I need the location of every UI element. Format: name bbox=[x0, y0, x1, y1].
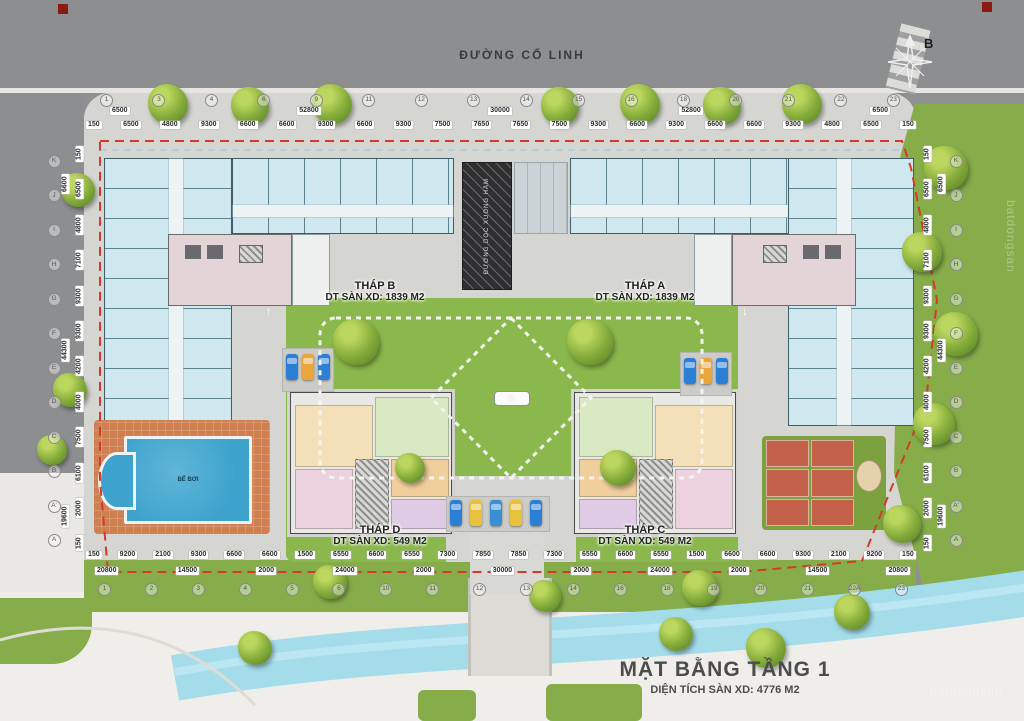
grid-bubble: 13 bbox=[467, 94, 480, 107]
tower-a-label: THÁP A DT SÀN XD: 1839 M2 bbox=[565, 280, 725, 303]
dimension-label: 7500 bbox=[433, 121, 453, 129]
grid-bubble: I bbox=[950, 224, 963, 237]
grid-bubble: 15 bbox=[572, 94, 585, 107]
dimension-label: 6600 bbox=[355, 121, 375, 129]
dim-chain-top-overall: 65005280030000528006500 bbox=[110, 107, 890, 115]
dimension-label: 150 bbox=[76, 146, 84, 162]
dimension-label: 7850 bbox=[509, 551, 529, 559]
grid-bubble: 23 bbox=[895, 583, 908, 596]
dimension-label: 9300 bbox=[76, 286, 84, 306]
grid-bubble: A bbox=[950, 534, 963, 547]
dimension-label: 2000 bbox=[256, 567, 276, 575]
dimension-label: 6500 bbox=[938, 174, 946, 194]
grid-bubble: 22 bbox=[834, 94, 847, 107]
grid-bubbles-right: KJIHGFEDCBA'A bbox=[948, 155, 964, 547]
dimension-label: 6600 bbox=[627, 121, 647, 129]
dimension-label: 6550 bbox=[580, 551, 600, 559]
dimension-label: 9300 bbox=[76, 321, 84, 341]
grid-bubble: 4 bbox=[205, 94, 218, 107]
dimension-label: 9300 bbox=[924, 321, 932, 341]
dimension-label: 150 bbox=[900, 551, 916, 559]
plan-title: MẶT BẰNG TẦNG 1 bbox=[585, 658, 865, 682]
grid-bubble: 16 bbox=[625, 94, 638, 107]
dimension-label: 6100 bbox=[924, 463, 932, 483]
dimension-label: 9300 bbox=[189, 551, 209, 559]
grid-bubble: 2 bbox=[145, 583, 158, 596]
dimension-label: 44300 bbox=[938, 338, 946, 361]
dimension-label: 6500 bbox=[76, 180, 84, 200]
grid-bubble: 6 bbox=[257, 94, 270, 107]
dimension-label: 6550 bbox=[651, 551, 671, 559]
grid-bubble: 6 bbox=[332, 583, 345, 596]
tree-icon bbox=[883, 505, 921, 543]
dimension-label: 7300 bbox=[544, 551, 564, 559]
tower-b-label: THÁP B DT SÀN XD: 1839 M2 bbox=[295, 280, 455, 303]
tower-c-label: THÁP C DT SÀN XD: 549 M2 bbox=[565, 524, 725, 547]
dimension-label: 2100 bbox=[829, 551, 849, 559]
dimension-label: 6500 bbox=[110, 107, 130, 115]
grid-bubble: 9 bbox=[310, 94, 323, 107]
grid-bubble: C bbox=[950, 431, 963, 444]
dimension-label: 150 bbox=[924, 536, 932, 552]
grid-bubbles-top: 134691112131415161820212223 bbox=[100, 94, 900, 107]
dimension-label: 9300 bbox=[316, 121, 336, 129]
grid-bubbles-bottom: 1234561011121314161819202122A23 bbox=[98, 583, 908, 596]
dimension-label: 14500 bbox=[176, 567, 199, 575]
tree-icon bbox=[600, 450, 636, 486]
dimension-label: 6600 bbox=[722, 551, 742, 559]
grid-bubble: 12 bbox=[473, 583, 486, 596]
grid-bubble: 14 bbox=[567, 583, 580, 596]
dimension-label: 2000 bbox=[729, 567, 749, 575]
grid-bubble: 11 bbox=[362, 94, 375, 107]
grid-bubble: H bbox=[950, 258, 963, 271]
grid-bubble: 12 bbox=[415, 94, 428, 107]
dimension-label: 2100 bbox=[153, 551, 173, 559]
traffic-arrow-icon: ↓ bbox=[742, 306, 748, 318]
dimension-label: 4200 bbox=[76, 357, 84, 377]
dimension-label: 6500 bbox=[121, 121, 141, 129]
dimension-label: 52800 bbox=[679, 107, 702, 115]
dimension-label: 4000 bbox=[924, 392, 932, 412]
grid-bubble: E bbox=[950, 362, 963, 375]
grid-bubble: 22A bbox=[848, 583, 861, 596]
watermark: batdongsan bbox=[930, 684, 1003, 698]
dimension-label: 9300 bbox=[394, 121, 414, 129]
grid-bubble: 13 bbox=[520, 583, 533, 596]
dimension-label: 4200 bbox=[924, 357, 932, 377]
grid-bubble: 10 bbox=[379, 583, 392, 596]
dimension-label: 150 bbox=[900, 121, 916, 129]
title-block: MẶT BẰNG TẦNG 1 DIỆN TÍCH SÀN XD: 4776 M… bbox=[585, 658, 865, 696]
dimension-label: 6550 bbox=[402, 551, 422, 559]
grid-bubble: D bbox=[950, 396, 963, 409]
grid-bubble: A bbox=[48, 534, 61, 547]
dim-chain-top-detail: 1506500480093006600660093006600930075007… bbox=[86, 121, 916, 129]
tree-icon bbox=[834, 594, 870, 630]
dimension-label: 9300 bbox=[793, 551, 813, 559]
road-name-label: ĐƯỜNG CỔ LINH bbox=[412, 48, 632, 62]
dimension-label: 6550 bbox=[331, 551, 351, 559]
dimension-label: 9300 bbox=[199, 121, 219, 129]
grid-bubble: 21 bbox=[801, 583, 814, 596]
grid-bubble: 20 bbox=[729, 94, 742, 107]
dimension-label: 30000 bbox=[488, 107, 511, 115]
dimension-label: 9300 bbox=[783, 121, 803, 129]
grid-bubble: G bbox=[950, 293, 963, 306]
dimension-label: 6600 bbox=[744, 121, 764, 129]
tree-icon bbox=[333, 319, 379, 365]
dimension-label: 150 bbox=[76, 536, 84, 552]
dimension-label: 6600 bbox=[62, 174, 70, 194]
watermark: batdongsan bbox=[1004, 200, 1018, 273]
dimension-label: 7850 bbox=[473, 551, 493, 559]
grid-bubble: J bbox=[950, 189, 963, 202]
tower-d-label: THÁP D DT SÀN XD: 549 M2 bbox=[300, 524, 460, 547]
dimension-label: 4000 bbox=[76, 392, 84, 412]
dim-chain-bottom-overall: 2080014500200024000200030000200024000200… bbox=[95, 567, 910, 575]
corner-mark bbox=[58, 4, 68, 14]
dimension-label: 6500 bbox=[924, 180, 932, 200]
dimension-label: 6500 bbox=[861, 121, 881, 129]
dimension-label: 7100 bbox=[924, 251, 932, 271]
grid-bubble: 14 bbox=[520, 94, 533, 107]
tree-icon bbox=[238, 631, 272, 665]
dimension-label: 150 bbox=[86, 551, 102, 559]
dim-chain-bottom-detail: 1509200210093006600660015006550660065507… bbox=[86, 551, 916, 559]
grid-bubble: K bbox=[48, 155, 61, 168]
grid-bubble: 18 bbox=[661, 583, 674, 596]
tree-icon bbox=[567, 319, 613, 365]
dimension-label: 2000 bbox=[414, 567, 434, 575]
dimension-label: 6600 bbox=[260, 551, 280, 559]
grid-bubble: 1 bbox=[98, 583, 111, 596]
dimension-label: 44300 bbox=[62, 338, 70, 361]
dimension-label: 7300 bbox=[438, 551, 458, 559]
dimension-label: 6600 bbox=[616, 551, 636, 559]
dimension-label: 7500 bbox=[76, 428, 84, 448]
dimension-label: 9300 bbox=[924, 286, 932, 306]
dimension-label: 4800 bbox=[76, 215, 84, 235]
grid-bubble: F bbox=[950, 327, 963, 340]
grid-bubble: 5 bbox=[286, 583, 299, 596]
dimension-label: 9300 bbox=[589, 121, 609, 129]
site-plan-drawing: ĐƯỜNG DỐC XUỐNG HẦM BỂ BƠI bbox=[0, 0, 1024, 721]
dimension-label: 6600 bbox=[758, 551, 778, 559]
dimension-label: 14500 bbox=[806, 567, 829, 575]
grid-bubble: 19 bbox=[707, 583, 720, 596]
dimension-label: 7650 bbox=[511, 121, 531, 129]
dimension-label: 24000 bbox=[333, 567, 356, 575]
grid-bubble: 11 bbox=[426, 583, 439, 596]
dimension-label: 30000 bbox=[491, 567, 514, 575]
dimension-label: 7500 bbox=[550, 121, 570, 129]
grid-bubble: 23 bbox=[887, 94, 900, 107]
dimension-label: 20800 bbox=[95, 567, 118, 575]
dimension-label: 2000 bbox=[571, 567, 591, 575]
dimension-label: 1500 bbox=[295, 551, 315, 559]
dimension-label: 20800 bbox=[886, 567, 909, 575]
grid-bubble: 18 bbox=[677, 94, 690, 107]
tree-icon bbox=[659, 617, 693, 651]
compass-label: B bbox=[924, 36, 933, 51]
dimension-label: 9200 bbox=[118, 551, 138, 559]
dimension-label: 6600 bbox=[224, 551, 244, 559]
grid-bubble: K bbox=[950, 155, 963, 168]
corner-mark bbox=[982, 2, 992, 12]
traffic-arrow-icon: ↑ bbox=[266, 306, 272, 318]
dimension-label: 6600 bbox=[705, 121, 725, 129]
dimension-label: 7500 bbox=[924, 428, 932, 448]
dimension-label: 6100 bbox=[76, 463, 84, 483]
grid-bubble: 21 bbox=[782, 94, 795, 107]
dimension-label: 6600 bbox=[367, 551, 387, 559]
dimension-label: 19600 bbox=[938, 504, 946, 527]
tree-icon bbox=[395, 453, 425, 483]
dimension-label: 6500 bbox=[870, 107, 890, 115]
dimension-label: 19600 bbox=[62, 504, 70, 527]
dimension-label: 4800 bbox=[822, 121, 842, 129]
grid-bubble: 4 bbox=[239, 583, 252, 596]
dimension-label: 4800 bbox=[160, 121, 180, 129]
dim-chain-left-detail: 1506500480071009300930042004000750061002… bbox=[72, 150, 88, 548]
dimension-label: 7100 bbox=[76, 251, 84, 271]
dimension-label: 2000 bbox=[924, 498, 932, 518]
grid-bubble: 16 bbox=[614, 583, 627, 596]
dimension-label: 7650 bbox=[472, 121, 492, 129]
dimension-label: 9200 bbox=[864, 551, 884, 559]
dimension-label: 24000 bbox=[648, 567, 671, 575]
grid-bubble: 1 bbox=[100, 94, 113, 107]
plan-subtitle: DIỆN TÍCH SÀN XD: 4776 M2 bbox=[585, 684, 865, 696]
grid-bubble: A' bbox=[950, 500, 963, 513]
dimension-label: 9300 bbox=[666, 121, 686, 129]
dimension-label: 2000 bbox=[76, 498, 84, 518]
dimension-label: 6600 bbox=[238, 121, 258, 129]
dimension-label: 52800 bbox=[297, 107, 320, 115]
dimension-label: 4800 bbox=[924, 215, 932, 235]
grid-bubble: B bbox=[950, 465, 963, 478]
grid-bubble: 20 bbox=[754, 583, 767, 596]
dimension-label: 6600 bbox=[277, 121, 297, 129]
grid-bubble: 3 bbox=[192, 583, 205, 596]
grid-bubble: 3 bbox=[152, 94, 165, 107]
dimension-label: 1500 bbox=[687, 551, 707, 559]
dimension-label: 150 bbox=[924, 146, 932, 162]
dimension-label: 150 bbox=[86, 121, 102, 129]
